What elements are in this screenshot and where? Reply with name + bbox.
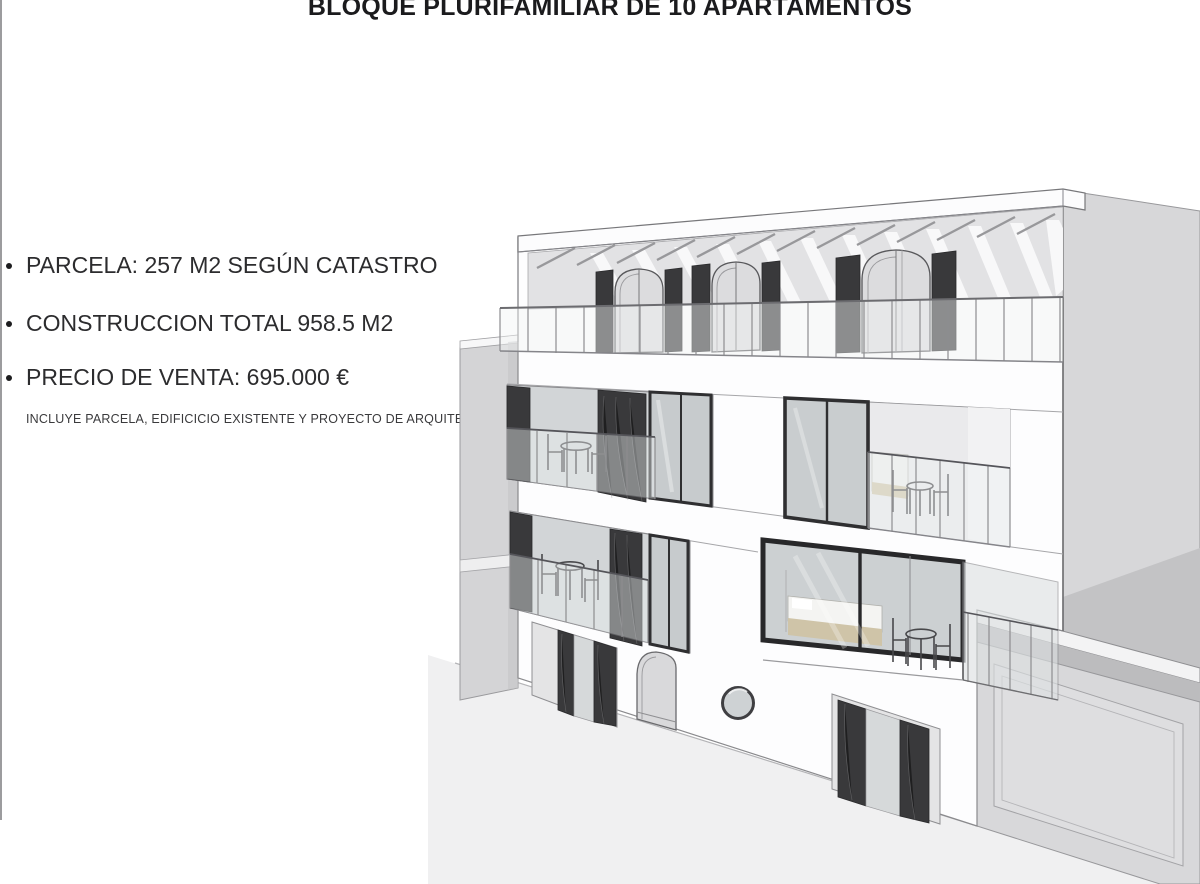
building-3d-render xyxy=(0,0,1200,884)
sliding-door xyxy=(650,535,688,652)
side-wall xyxy=(1063,190,1200,668)
entry-arch-door xyxy=(637,652,676,730)
glass-doors xyxy=(785,398,868,528)
sliding-door xyxy=(650,392,711,506)
porthole-window xyxy=(723,688,754,719)
terrace-glass-railing xyxy=(500,297,1063,362)
corner-glass-balcony xyxy=(963,562,1058,700)
